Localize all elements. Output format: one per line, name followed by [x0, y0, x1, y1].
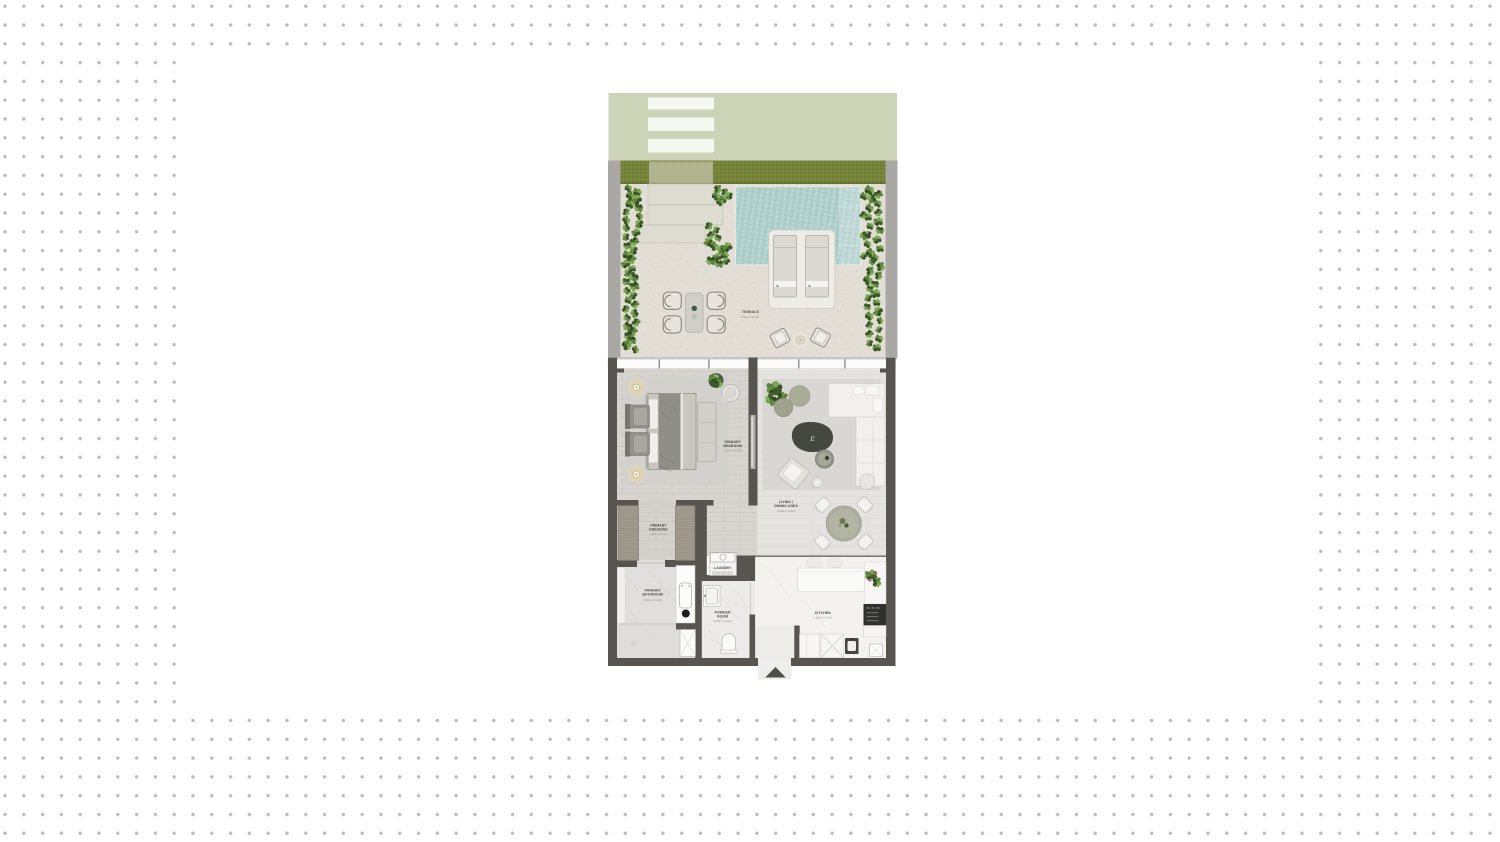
svg-text:1.90m X 3.70m: 1.90m X 3.70m	[814, 616, 832, 619]
svg-text:DINING AREA: DINING AREA	[774, 504, 798, 508]
svg-text:TERRACE: TERRACE	[742, 310, 760, 314]
svg-text:ROOM: ROOM	[717, 614, 728, 618]
svg-text:KITCHEN: KITCHEN	[815, 611, 831, 615]
svg-text:4.20m X 6.05m: 4.20m X 6.05m	[777, 510, 795, 513]
svg-text:2.35m X 2.50m: 2.35m X 2.50m	[644, 599, 662, 602]
svg-text:0.90m X 2.10m: 0.90m X 2.10m	[713, 620, 731, 623]
svg-text:BEDROOM: BEDROOM	[724, 444, 743, 448]
svg-text:8.96m X 9.50m: 8.96m X 9.50m	[741, 316, 759, 319]
svg-text:BATHROOM: BATHROOM	[642, 592, 663, 596]
svg-text:LAUNDRY: LAUNDRY	[714, 566, 732, 570]
svg-text:5.50m X 4.05m: 5.50m X 4.05m	[724, 450, 742, 453]
svg-text:2.35m X 1.80m: 2.35m X 1.80m	[649, 533, 667, 536]
svg-text:E: E	[809, 434, 815, 443]
svg-text:DRESSING: DRESSING	[649, 528, 668, 532]
